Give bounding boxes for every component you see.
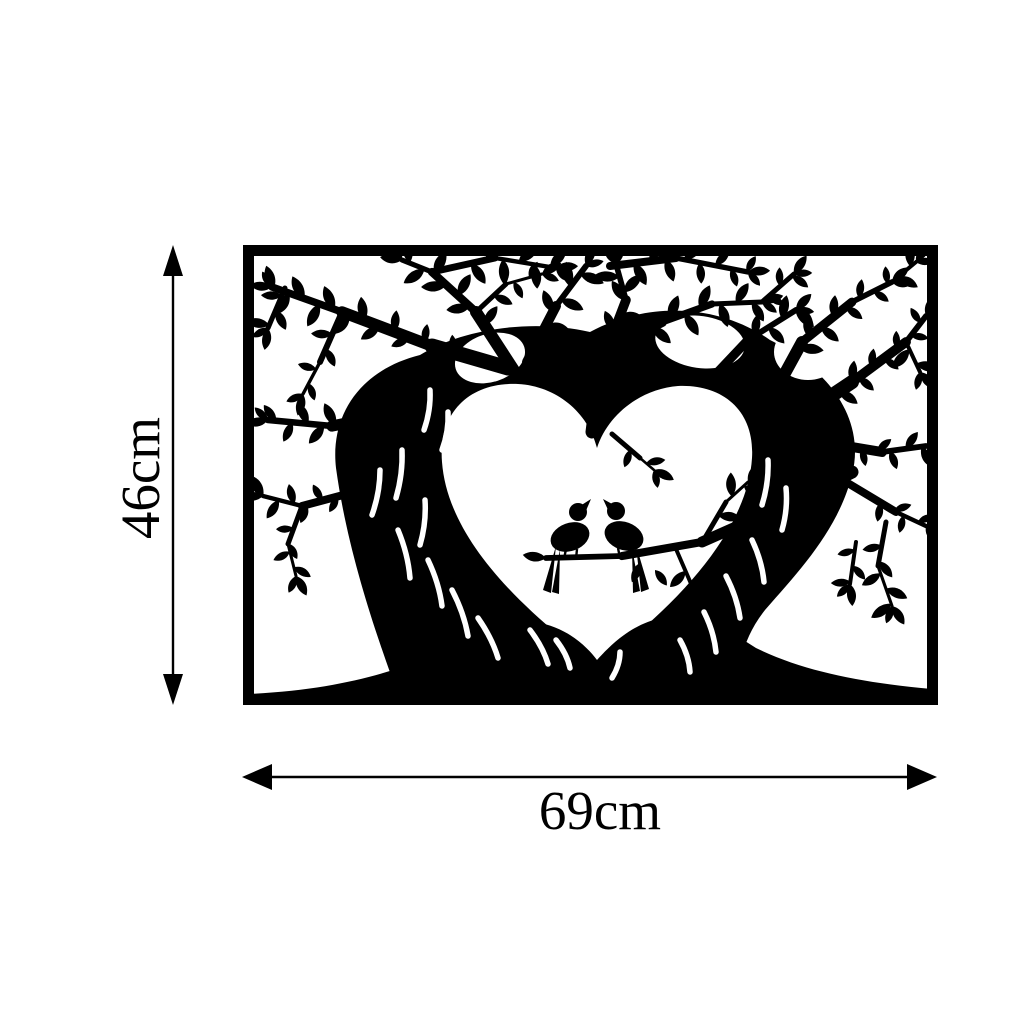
- width-arrow-head-left: [242, 764, 272, 790]
- branch-segment: [546, 556, 622, 558]
- bird-leg: [629, 547, 630, 558]
- height-dimension-label: 46cm: [113, 378, 165, 578]
- branch-segment: [592, 368, 600, 432]
- product-dimension-diagram: 46cm 69cm: [0, 0, 1024, 1024]
- bird-leg: [576, 549, 577, 559]
- width-arrow-head-right: [907, 764, 937, 790]
- height-arrow-head-top: [163, 245, 183, 276]
- tree-heart-artwork: [241, 235, 949, 705]
- width-dimension-label: 69cm: [500, 783, 700, 835]
- height-arrow-head-bottom: [163, 674, 183, 705]
